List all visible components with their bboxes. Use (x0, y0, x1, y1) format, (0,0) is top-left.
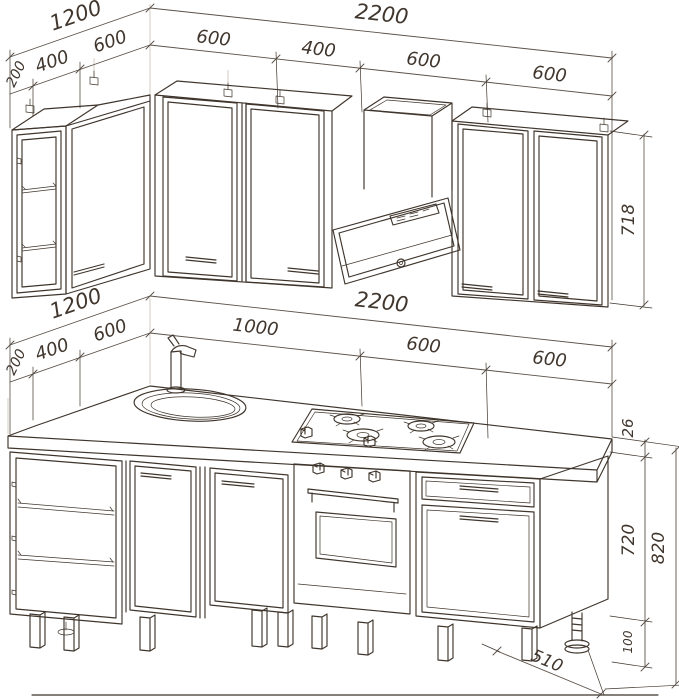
dim-label-bottom-right-1000: 1000 (232, 315, 280, 341)
dim-label-overall-820: 820 (649, 532, 669, 564)
dimensions-base-view: 1200 200 400 600 2200 1000 600 600 26 72… (3, 283, 679, 698)
wall-cabinet-double-door (452, 107, 628, 307)
base-cabinet-drawer-door (416, 456, 608, 628)
gas-hob (292, 409, 474, 453)
cabinet-legs (30, 608, 589, 661)
dim-label-bottom-left-200: 200 (3, 347, 29, 378)
lower-door-handle (460, 516, 498, 522)
base-cabinet-shelves (18, 503, 114, 566)
sink-bowl-rim (133, 386, 247, 424)
built-in-oven (294, 463, 410, 614)
dim-label-worktop-26: 26 (619, 418, 637, 437)
dim-label-bottom-left-400: 400 (32, 334, 71, 365)
base-cabinet-sink-door (200, 467, 288, 618)
corner-base-handle (141, 473, 171, 479)
sink-door-handle (222, 481, 254, 487)
dimension-lines-bottom (10, 296, 676, 694)
drawer-handle (460, 486, 498, 492)
wall-cabinets-600-400 (155, 81, 352, 288)
corner-cabinet-handle (74, 264, 104, 275)
dim-label-bottom-right-600a: 600 (405, 333, 441, 358)
cooker-hood (333, 97, 460, 284)
dim-label-top-right-600c: 600 (531, 62, 567, 87)
dim-label-top-right-total: 2200 (354, 0, 410, 29)
dim-label-top-right-400: 400 (300, 37, 336, 62)
kitchen-drawing-canvas: 1200 200 400 600 2200 600 400 600 600 71… (0, 0, 679, 700)
dim-label-top-left-total: 1200 (46, 0, 104, 36)
oven-handle (308, 489, 398, 512)
wall-cabinet-handles (186, 257, 318, 274)
dim-label-depth-510: 510 (528, 646, 566, 677)
kitchen-technical-drawing: 1200 200 400 600 2200 600 400 600 600 71… (0, 0, 679, 700)
dim-label-top-left-600: 600 (90, 26, 129, 57)
hob-knobs (301, 427, 375, 447)
dim-label-bottom-right-600b: 600 (531, 347, 567, 372)
lower-door (422, 505, 534, 622)
base-cabinet-corner-door (126, 461, 196, 617)
dimensions-wall-view: 1200 200 400 600 2200 600 400 600 600 71… (3, 0, 652, 309)
dim-label-top-left-400: 400 (32, 46, 71, 77)
dim-label-top-left-200: 200 (3, 59, 29, 90)
dim-label-top-right-600b: 600 (405, 48, 441, 73)
worktop (8, 386, 612, 482)
mixer-tap (167, 335, 196, 393)
dimension-ticks-bottom (6, 292, 679, 698)
dim-label-cabinet-height-718: 718 (619, 204, 639, 237)
wall-lines-bottom (8, 298, 150, 434)
witness-lines-top (10, 50, 612, 300)
base-cabinet-open-shelves (10, 452, 122, 624)
dim-label-bottom-right-total: 2200 (354, 287, 410, 317)
cabinet-side-panel (540, 456, 608, 628)
dim-label-top-right-600a: 600 (195, 26, 231, 51)
glass-cabinet-shelves (22, 186, 56, 251)
dim-label-carcass-720: 720 (619, 524, 639, 556)
adjustable-foot (565, 612, 589, 653)
hood-visor (333, 198, 460, 284)
adjustable-foot-left (58, 622, 74, 635)
witness-lines-bottom (10, 338, 679, 695)
dim-label-leg-100: 100 (621, 630, 635, 653)
wall-cabinet-corner (66, 95, 150, 294)
hood-duct (364, 97, 452, 197)
